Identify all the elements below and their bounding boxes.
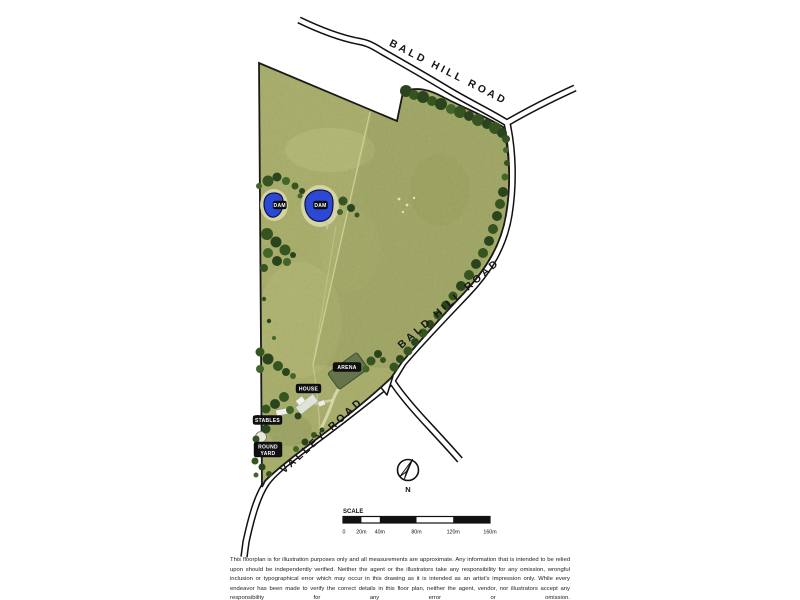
round-yard-label-line1: ROUND (258, 445, 278, 451)
compass-north-label: N (405, 485, 410, 494)
scale-tick-0: 0 (343, 530, 346, 536)
scale-title: SCALE (343, 509, 363, 515)
scale-tick-20: 20m (356, 530, 367, 536)
round-yard-label-line2: YARD (261, 451, 276, 457)
site-plan-page: DAM DAM ARENA HOUSE STABLES ROUND YARD B… (0, 0, 800, 600)
arena-label: ARENA (337, 365, 356, 371)
dam-east-label: DAM (314, 203, 326, 209)
scale-tick-120: 120m (447, 530, 461, 536)
house-label: HOUSE (299, 387, 319, 393)
scale-tick-80: 80m (411, 530, 422, 536)
scale-tick-40: 40m (375, 530, 386, 536)
stables-label: STABLES (255, 418, 280, 424)
site-plan-map: DAM DAM ARENA HOUSE STABLES ROUND YARD B… (0, 0, 800, 600)
disclaimer-text: This floorplan is for illustration purpo… (230, 556, 570, 600)
dam-west-label: DAM (274, 203, 286, 209)
scale-tick-160: 160m (483, 530, 497, 536)
